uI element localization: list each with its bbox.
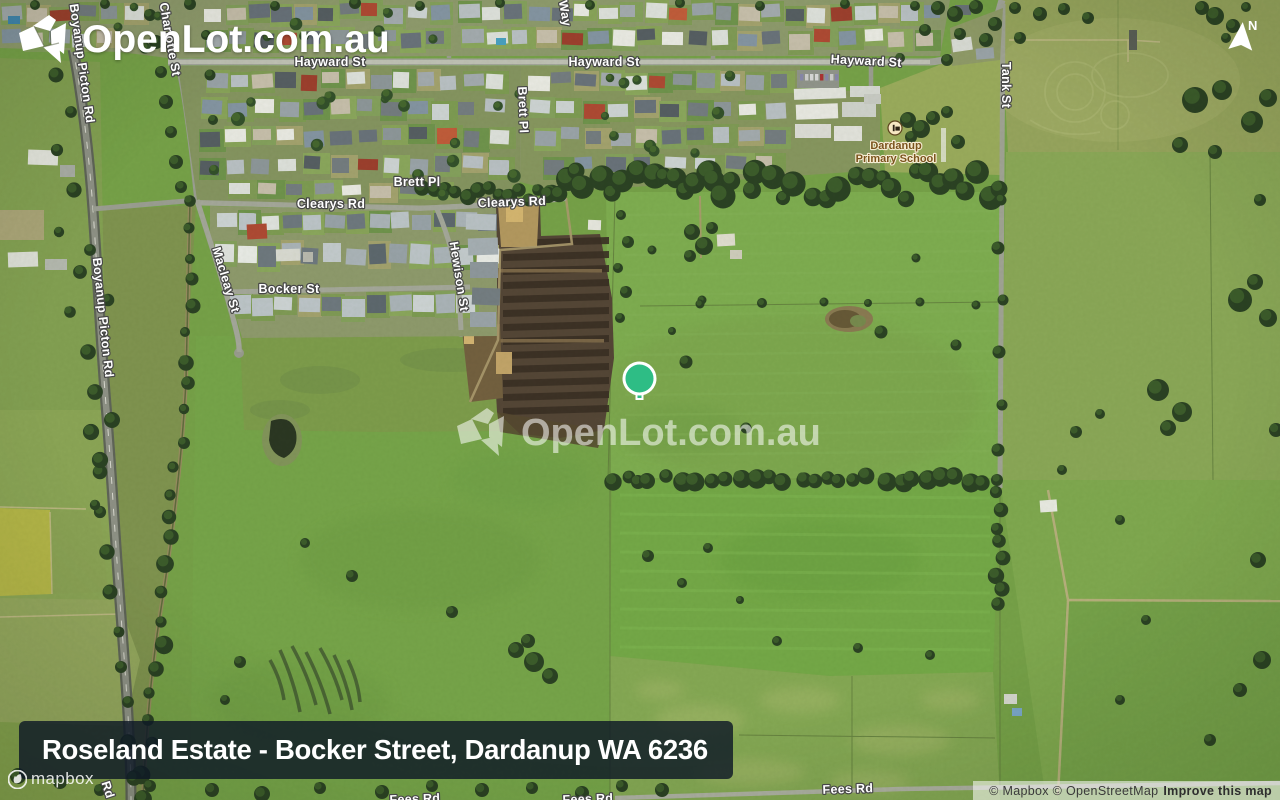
svg-text:Brett Pl: Brett Pl <box>515 86 531 133</box>
svg-text:Fees Rd: Fees Rd <box>562 791 613 800</box>
svg-text:Fees Rd: Fees Rd <box>389 791 440 800</box>
svg-text:Dardanup: Dardanup <box>870 140 922 152</box>
svg-text:Fees Rd: Fees Rd <box>822 781 873 797</box>
svg-text:Hayward St: Hayward St <box>568 55 640 69</box>
svg-text:Brett Pl: Brett Pl <box>394 175 441 189</box>
svg-text:Bocker St: Bocker St <box>258 282 320 296</box>
svg-text:Clearys Rd: Clearys Rd <box>477 194 546 210</box>
svg-text:Primary School: Primary School <box>856 153 937 165</box>
svg-text:N: N <box>1248 18 1257 33</box>
svg-text:Clearys Rd: Clearys Rd <box>297 197 365 211</box>
svg-text:Tank St: Tank St <box>999 62 1013 109</box>
